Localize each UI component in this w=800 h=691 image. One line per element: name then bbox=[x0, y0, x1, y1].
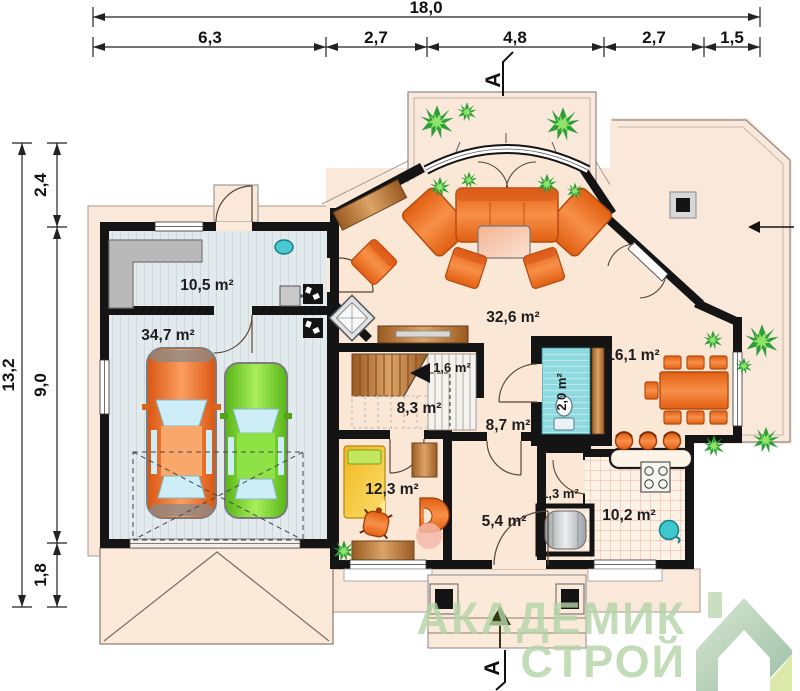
section-letter: A bbox=[482, 72, 505, 87]
dim-left-total: 13,2 bbox=[0, 358, 18, 391]
utility-sink bbox=[275, 240, 293, 254]
car-green bbox=[220, 363, 292, 518]
label-stair-closet: 1,6 m² bbox=[433, 360, 471, 375]
watermark-line2: СТРОЙ bbox=[520, 636, 686, 687]
label-vestibule: 8,7 m² bbox=[486, 417, 531, 434]
garage-canopy bbox=[100, 548, 333, 644]
plan-drawing: 10,5 m² 34,7 m² 32,6 m² 1,6 m² 8,3 m² 8,… bbox=[0, 0, 800, 691]
label-utility: 10,5 m² bbox=[180, 277, 233, 294]
garage-window bbox=[100, 360, 109, 414]
dim-left-seg: 1,8 bbox=[31, 563, 50, 587]
label-hall: 8,3 m² bbox=[397, 400, 442, 417]
section-marker-top: A bbox=[482, 52, 513, 96]
section-marker-bottom: A bbox=[481, 650, 505, 690]
bar-stools bbox=[616, 432, 681, 449]
dining-table bbox=[660, 372, 728, 409]
desk bbox=[352, 541, 414, 561]
logo-house-icon bbox=[696, 592, 792, 691]
label-wc: 2,0 m² bbox=[554, 373, 569, 411]
coffee-table bbox=[478, 226, 530, 258]
stove bbox=[641, 462, 670, 492]
dim-top-seg: 6,3 bbox=[198, 28, 222, 47]
label-living: 32,6 m² bbox=[486, 309, 539, 326]
watermark: АКАДЕМИК СТРОЙ bbox=[417, 593, 687, 687]
label-garage: 34,7 m² bbox=[141, 327, 194, 344]
dim-left-seg: 2,4 bbox=[31, 173, 50, 197]
section-letter: A bbox=[481, 660, 504, 675]
dim-top-seg: 4,8 bbox=[503, 28, 527, 47]
dim-top-seg: 1,5 bbox=[720, 28, 744, 47]
label-dining: 16,1 m² bbox=[606, 347, 659, 364]
dim-top-seg: 2,7 bbox=[642, 28, 666, 47]
utility-window bbox=[155, 222, 203, 231]
dim-top-total: 18,0 bbox=[409, 0, 442, 17]
bedroom-window bbox=[344, 560, 432, 581]
dim-top-seg: 2,7 bbox=[364, 28, 388, 47]
rug bbox=[416, 523, 442, 549]
tv-cabinet bbox=[378, 326, 468, 343]
dim-left-seg: 9,0 bbox=[31, 373, 50, 397]
kitchen-window bbox=[588, 560, 662, 581]
terrace-column bbox=[670, 192, 696, 218]
label-kitchen: 10,2 m² bbox=[602, 507, 655, 524]
label-entry: 5,4 m² bbox=[482, 513, 527, 530]
label-bedroom: 12,3 m² bbox=[365, 481, 418, 498]
wardrobe bbox=[412, 443, 437, 477]
car-orange bbox=[142, 348, 221, 518]
floor-plan: 10,5 m² 34,7 m² 32,6 m² 1,6 m² 8,3 m² 8,… bbox=[0, 0, 800, 691]
label-pantry: 1,3 m² bbox=[541, 486, 579, 501]
